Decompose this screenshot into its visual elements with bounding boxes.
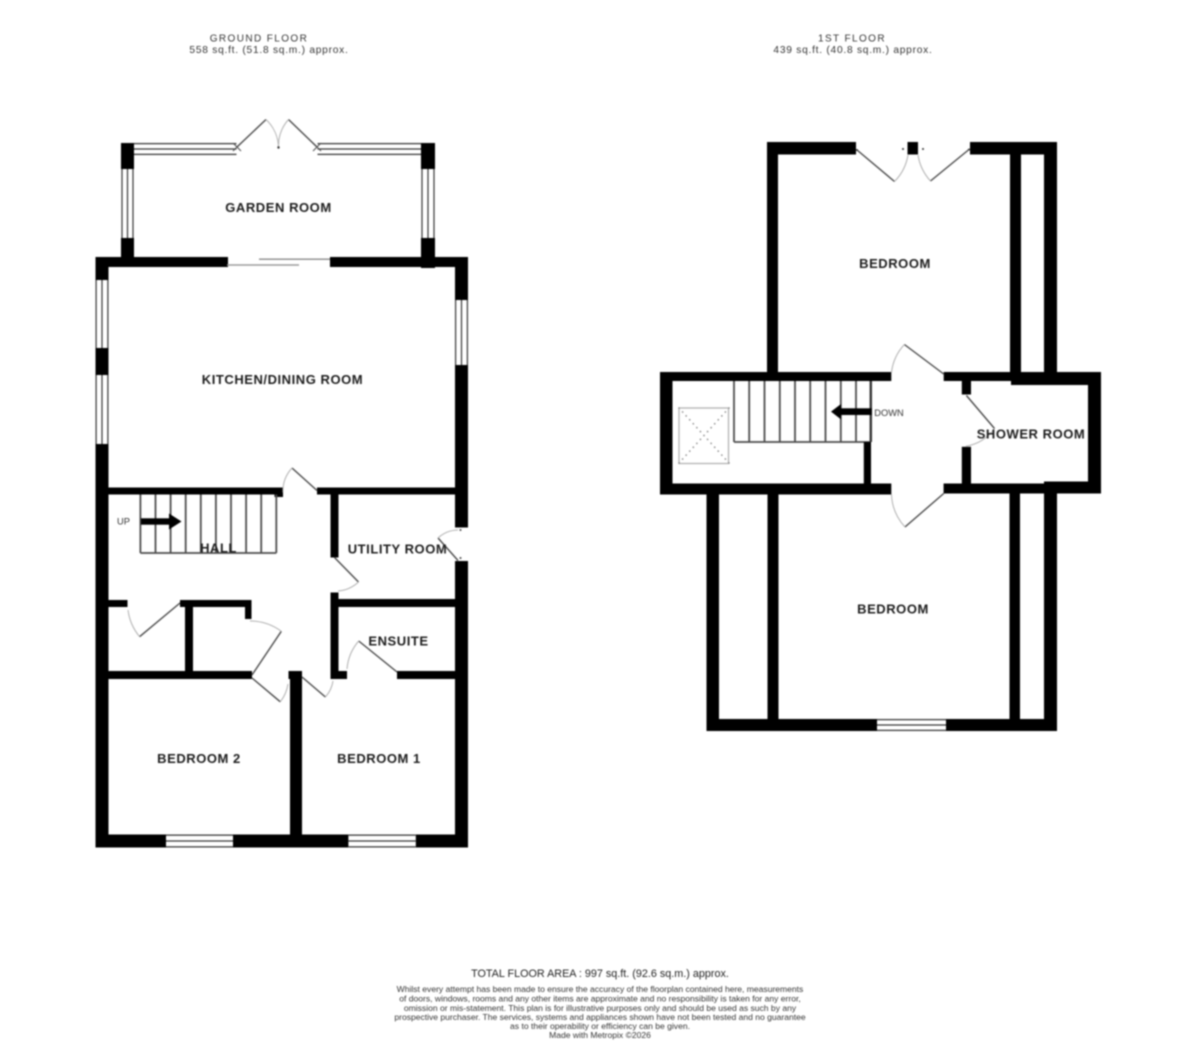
svg-text:BEDROOM 2: BEDROOM 2 — [157, 751, 241, 766]
svg-text:Made with Metropix ©2026: Made with Metropix ©2026 — [549, 1030, 651, 1040]
svg-text:Whilst every attempt has been: Whilst every attempt has been made to en… — [397, 984, 804, 994]
svg-text:KITCHEN/DINING ROOM: KITCHEN/DINING ROOM — [202, 372, 363, 387]
svg-text:GARDEN ROOM: GARDEN ROOM — [225, 200, 331, 215]
svg-text:558 sq.ft. (51.8 sq.m.) appro: 558 sq.ft. (51.8 sq.m.) approx. — [189, 45, 348, 56]
svg-text:GROUND FLOOR: GROUND FLOOR — [210, 34, 308, 45]
svg-text:UTILITY ROOM: UTILITY ROOM — [348, 542, 448, 557]
svg-text:HALL: HALL — [200, 541, 237, 556]
svg-text:SHOWER ROOM: SHOWER ROOM — [977, 427, 1086, 442]
svg-text:of doors, windows, rooms and a: of doors, windows, rooms and any other i… — [399, 994, 800, 1004]
svg-text:UP: UP — [117, 517, 130, 527]
svg-text:TOTAL FLOOR AREA : 997 sq.ft.: TOTAL FLOOR AREA : 997 sq.ft. (92.6 sq.m… — [471, 968, 729, 980]
svg-text:1ST FLOOR: 1ST FLOOR — [818, 34, 886, 45]
svg-text:ENSUITE: ENSUITE — [368, 634, 428, 649]
svg-text:BEDROOM 1: BEDROOM 1 — [337, 751, 421, 766]
svg-text:BEDROOM: BEDROOM — [857, 602, 929, 617]
svg-text:BEDROOM: BEDROOM — [859, 256, 931, 271]
svg-text:439 sq.ft. (40.8 sq.m.) appro: 439 sq.ft. (40.8 sq.m.) approx. — [773, 45, 932, 56]
svg-text:DOWN: DOWN — [874, 408, 903, 418]
